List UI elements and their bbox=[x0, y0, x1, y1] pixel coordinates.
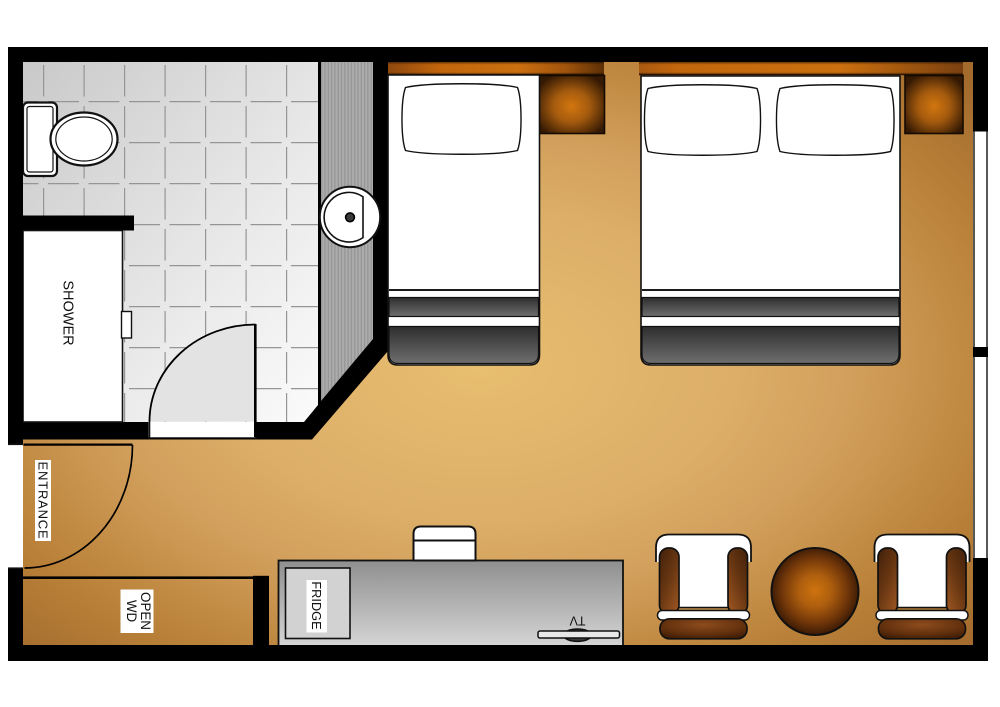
svg-text:ENTRANCE: ENTRANCE bbox=[36, 462, 51, 540]
svg-text:TV: TV bbox=[569, 614, 586, 628]
svg-text:SHOWER: SHOWER bbox=[60, 280, 76, 345]
svg-text:FRIDGE: FRIDGE bbox=[309, 581, 324, 629]
